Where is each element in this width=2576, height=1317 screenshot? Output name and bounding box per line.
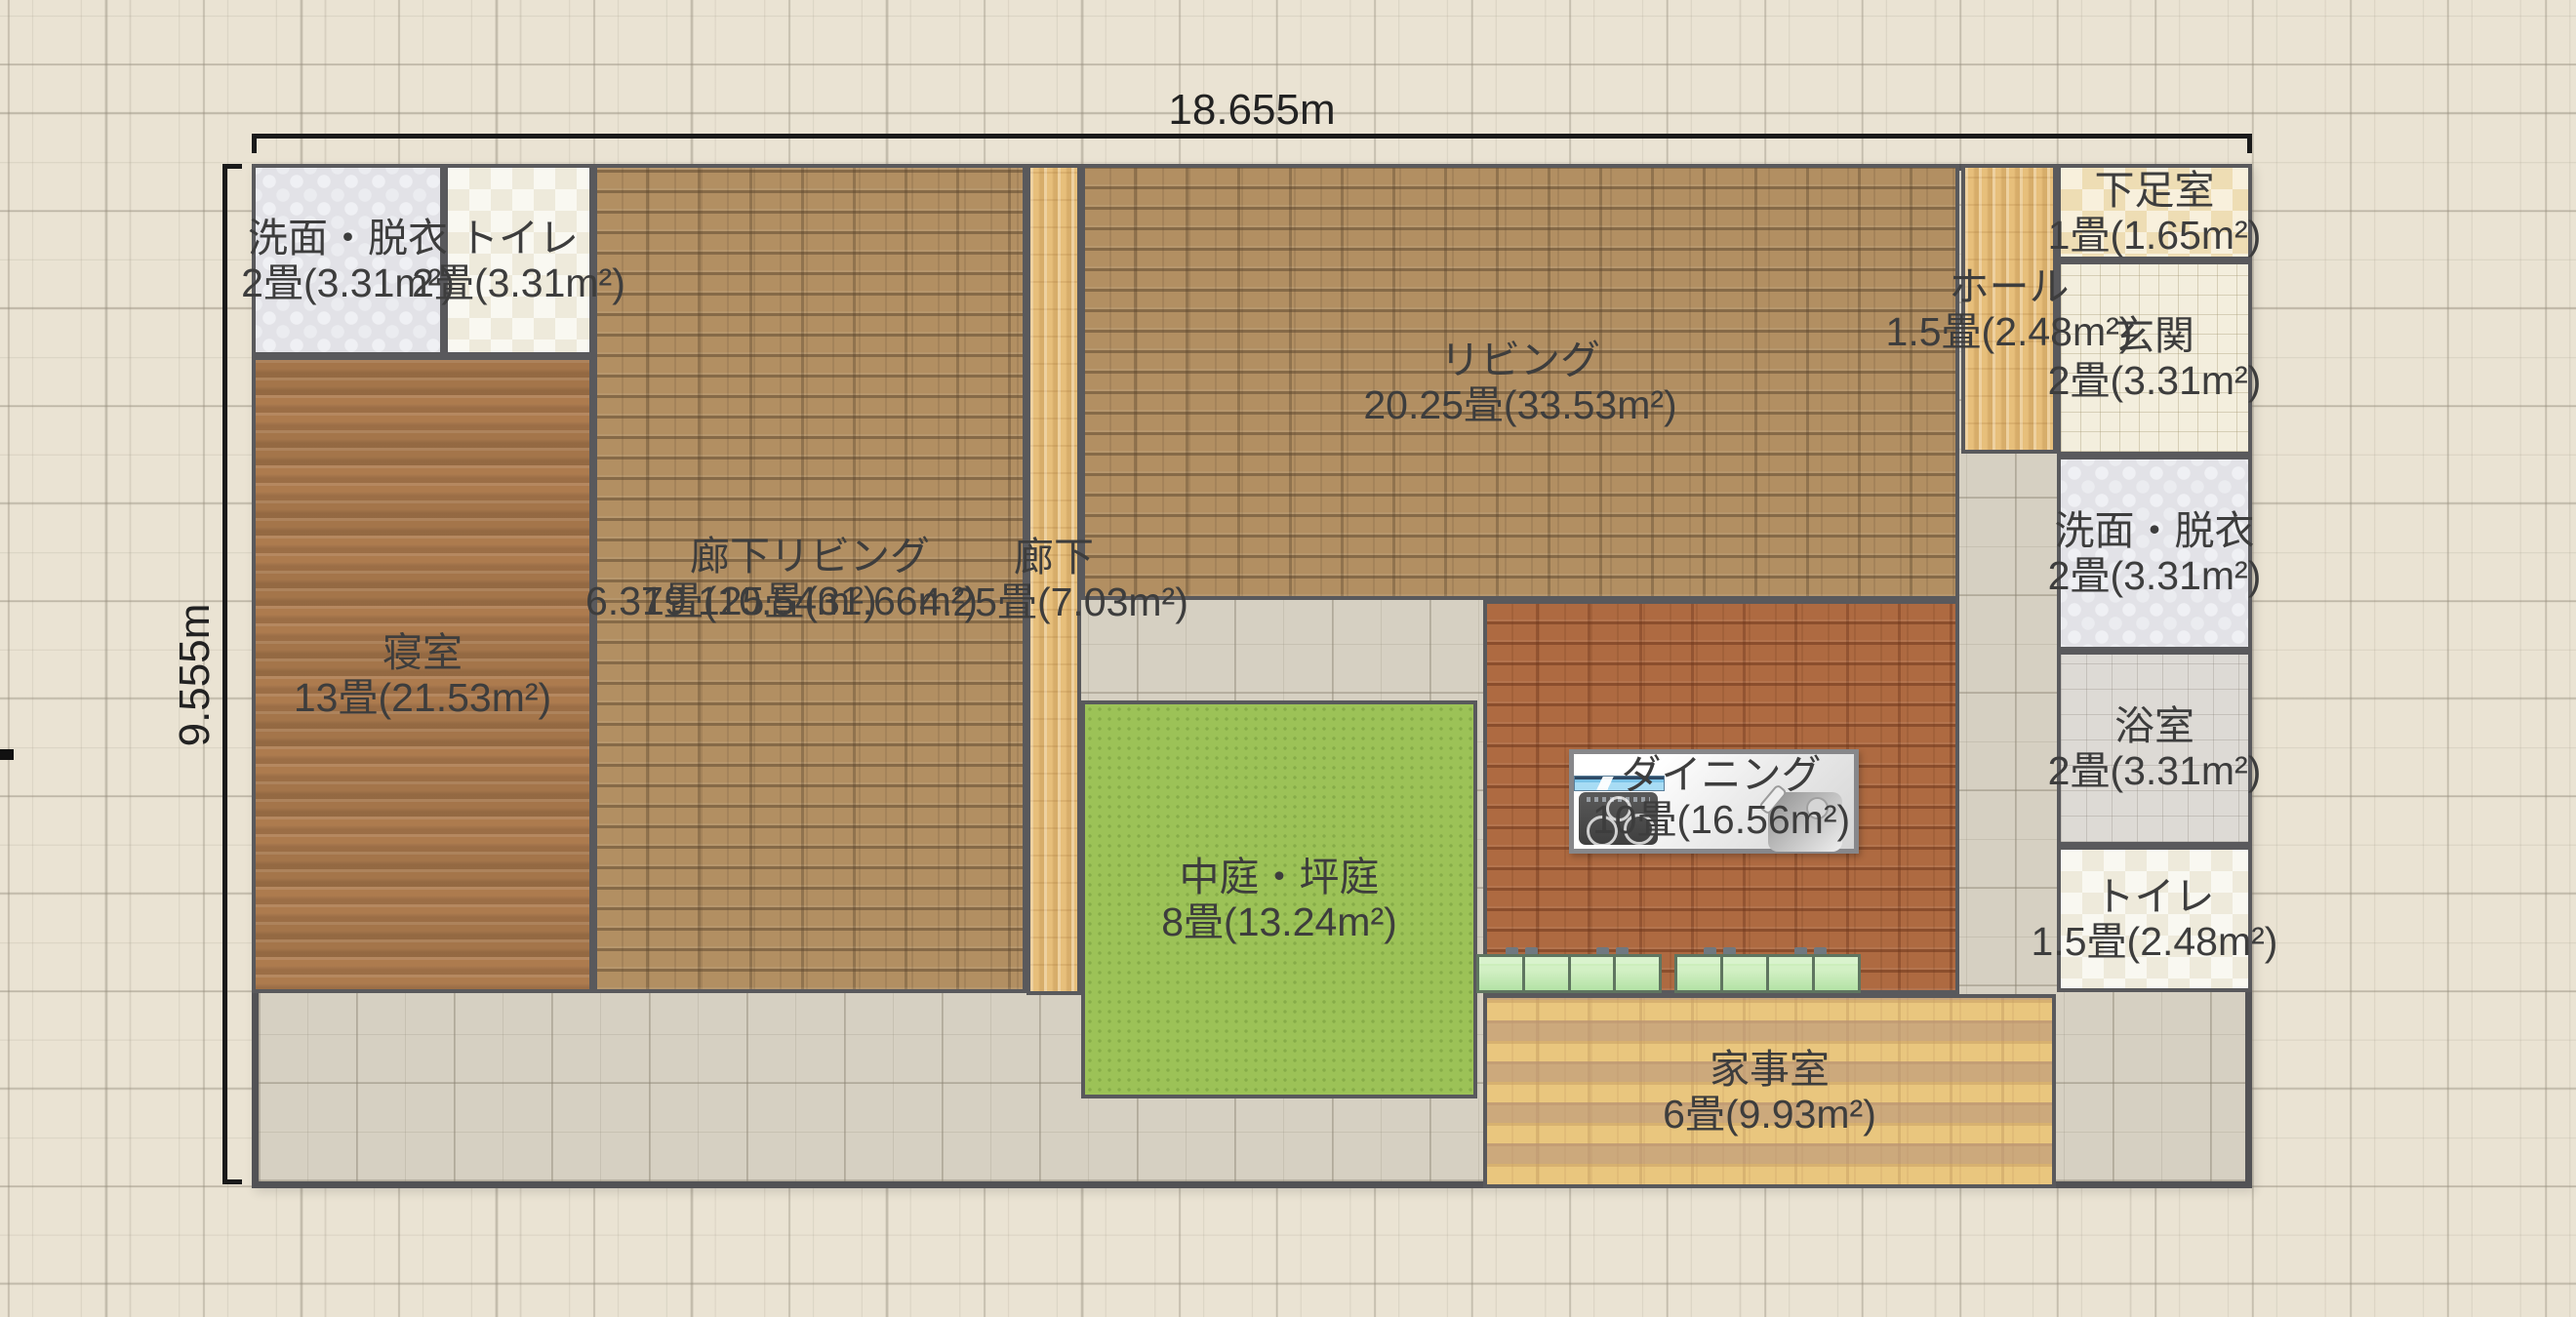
left-dimension-line [222, 164, 227, 1184]
room-label-corridor: 廊下4.25畳(7.03m²) [919, 535, 1188, 624]
storage-chest-cell[interactable] [1522, 954, 1571, 993]
storage-chest-cell[interactable] [1812, 954, 1861, 993]
overlapping-size-label: 6.37畳(10.54m²) [585, 579, 877, 623]
top-dimension-tick-left [252, 134, 257, 153]
room-size: 8畳(13.24m²) [1161, 899, 1397, 944]
left-dimension-tick-top [222, 164, 242, 169]
room-size: 1.5畳(2.48m²) [2032, 919, 2278, 964]
left-dimension-label: 9.555m [171, 604, 220, 747]
top-dimension-tick-right [2247, 134, 2252, 153]
left-dimension-tick-bottom [222, 1179, 242, 1184]
storage-chest-group[interactable] [1476, 954, 1662, 993]
room-label-shoe-room: 下足室1畳(1.65m²) [2048, 168, 2262, 258]
room-label-utility-room: 家事室6畳(9.93m²) [1663, 1047, 1876, 1137]
room-size: 4.25畳(7.03m²) [919, 579, 1188, 624]
room-name: ダイニング [1592, 752, 1850, 797]
room-size: 1畳(1.65m²) [2048, 213, 2262, 258]
room-size: 2畳(3.31m²) [412, 260, 625, 305]
storage-chest-cell[interactable] [1766, 954, 1815, 993]
room-name: 中庭・坪庭 [1161, 855, 1397, 899]
canvas-marker [0, 749, 14, 760]
room-label-toilet-top-left: トイレ2畳(3.31m²) [412, 216, 625, 305]
room-name: 廊下 [919, 535, 1188, 579]
room-name: リビング [1363, 338, 1676, 382]
storage-chest-cell[interactable] [1674, 954, 1723, 993]
top-dimension-label: 18.655m [1168, 86, 1335, 135]
room-label-courtyard: 中庭・坪庭8畳(13.24m²) [1161, 855, 1397, 944]
room-name: 寝室 [294, 630, 551, 675]
storage-chest-cell[interactable] [1568, 954, 1617, 993]
room-size: 2畳(3.31m²) [2048, 748, 2262, 793]
room-name: 家事室 [1663, 1047, 1876, 1092]
room-size: 20.25畳(33.53m²) [1363, 382, 1676, 427]
storage-chest-cell[interactable] [1613, 954, 1662, 993]
room-size: 6畳(9.93m²) [1663, 1092, 1876, 1137]
room-label-washroom-right: 洗面・脱衣2畳(3.31m²) [2048, 508, 2262, 598]
room-name: ホール [1886, 264, 2133, 309]
room-name: 玄関 [2048, 313, 2262, 358]
storage-chest-cell[interactable] [1720, 954, 1769, 993]
room-label-bathroom: 浴室2畳(3.31m²) [2048, 703, 2262, 793]
room-size: 13畳(21.53m²) [294, 675, 551, 720]
floorplan-canvas: 18.655m 9.555m 洗面・脱衣2畳(3.31m²)トイレ2畳(3.31… [0, 0, 2576, 1317]
room-label-toilet-right: トイレ1.5畳(2.48m²) [2032, 874, 2278, 964]
room-name: 洗面・脱衣 [2048, 508, 2262, 553]
room-size: 10畳(16.56m²) [1592, 797, 1850, 842]
room-label-bedroom: 寝室13畳(21.53m²) [294, 630, 551, 720]
room-name: トイレ [412, 216, 625, 260]
room-label-dining: ダイニング10畳(16.56m²) [1592, 752, 1850, 842]
room-name: 浴室 [2048, 703, 2262, 748]
room-name: 下足室 [2048, 168, 2262, 213]
room-size: 2畳(3.31m²) [2048, 553, 2262, 598]
room-name: トイレ [2032, 874, 2278, 919]
storage-chest-cell[interactable] [1476, 954, 1525, 993]
room-label-living: リビング20.25畳(33.53m²) [1363, 338, 1676, 427]
storage-chest-group[interactable] [1674, 954, 1861, 993]
room-size: 2畳(3.31m²) [2048, 358, 2262, 403]
room-label-entrance: 玄関2畳(3.31m²) [2048, 313, 2262, 403]
